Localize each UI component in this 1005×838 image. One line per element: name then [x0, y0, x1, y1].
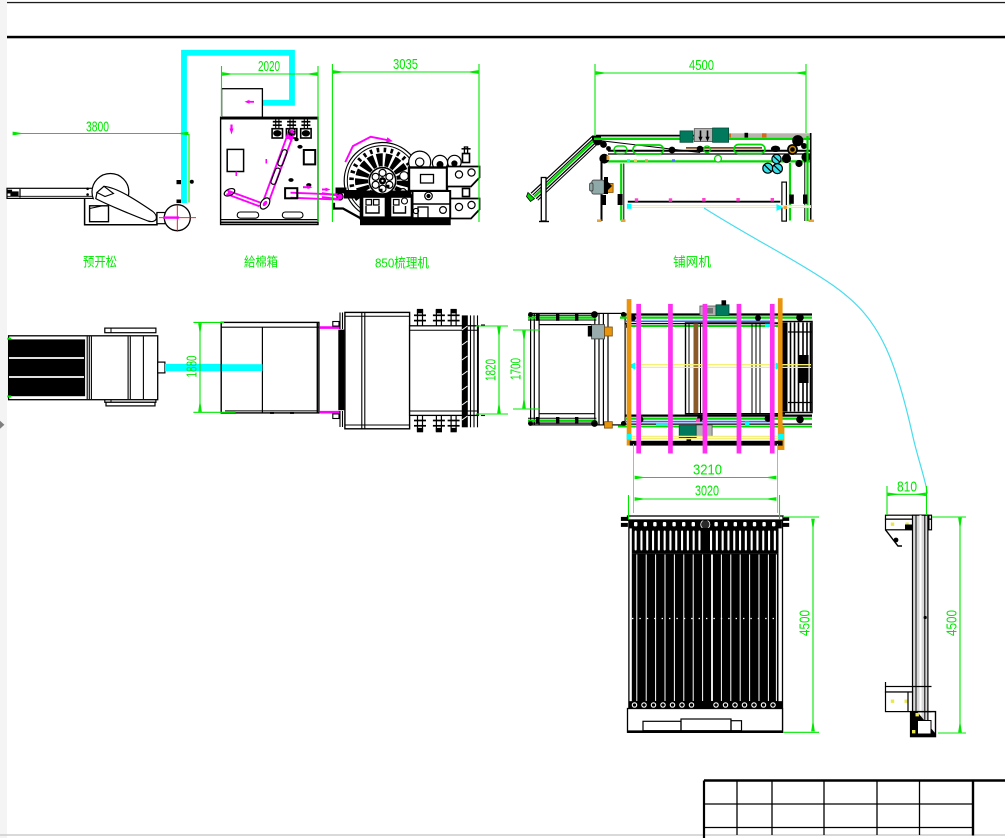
svg-text:预开松: 预开松 — [83, 255, 117, 270]
svg-text:3210: 3210 — [693, 462, 722, 479]
svg-text:2020: 2020 — [258, 58, 280, 75]
svg-text:4500: 4500 — [944, 610, 961, 636]
svg-text:850梳理机: 850梳理机 — [375, 256, 429, 271]
svg-text:1700: 1700 — [508, 358, 525, 380]
svg-text:4500: 4500 — [689, 57, 714, 74]
svg-text:4500: 4500 — [797, 610, 814, 636]
svg-text:給棉箱: 給棉箱 — [244, 255, 278, 270]
svg-text:810: 810 — [897, 479, 917, 496]
svg-text:铺网机: 铺网机 — [673, 255, 711, 270]
svg-text:3020: 3020 — [695, 483, 719, 500]
svg-text:3800: 3800 — [86, 119, 109, 136]
svg-text:1880: 1880 — [184, 356, 201, 378]
svg-text:1820: 1820 — [483, 359, 500, 381]
svg-text:3035: 3035 — [393, 56, 418, 73]
